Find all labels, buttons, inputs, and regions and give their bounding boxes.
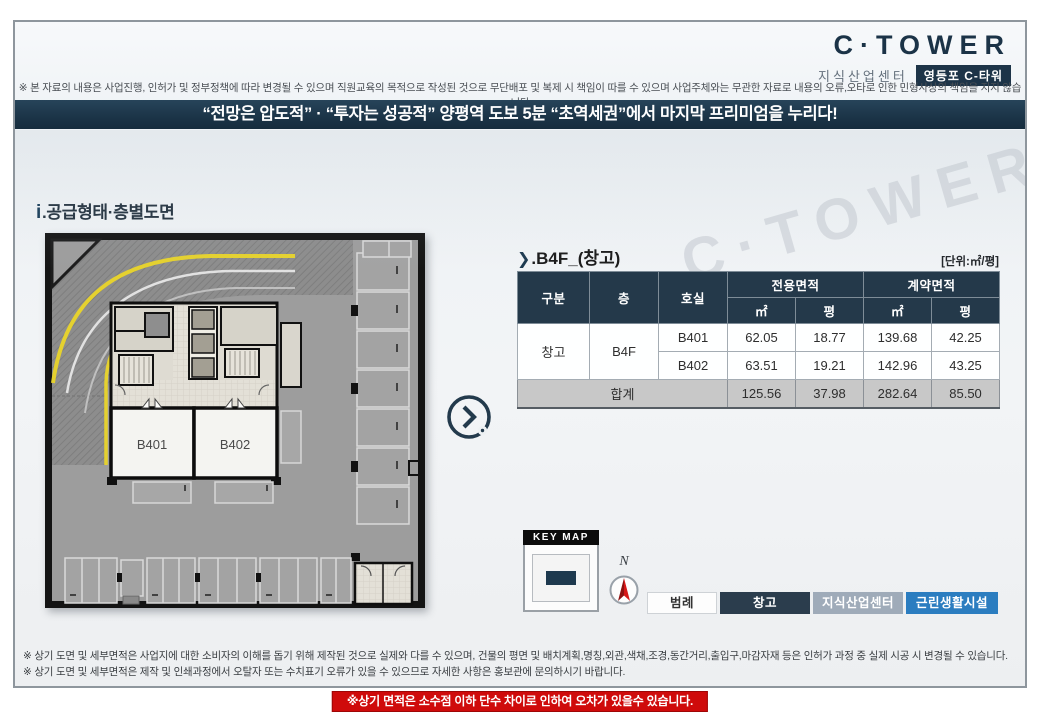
keymap: KEY MAP bbox=[523, 530, 599, 612]
wall-nook bbox=[409, 461, 419, 475]
col-floor: 층 bbox=[590, 272, 659, 324]
compass-north-label: N bbox=[618, 554, 629, 569]
cell-room: B401 bbox=[659, 324, 728, 352]
area-warning-bar: ※상기 면적은 소수점 이하 단수 차이로 인하여 오차가 있을수 있습니다. bbox=[332, 691, 708, 712]
col-exclusive-m2: ㎡ bbox=[728, 298, 796, 324]
footer-note-2: ※ 상기 도면 및 세부면적은 제작 및 인쇄과정에서 오탈자 또는 수치표기 … bbox=[23, 664, 625, 679]
cell-room: B402 bbox=[659, 352, 728, 380]
elevator-lobby bbox=[173, 305, 189, 380]
legend-item-knowledge-industry: 지식산업센터 bbox=[813, 592, 903, 614]
legend-item-neighborhood-facility: 근린생활시설 bbox=[906, 592, 998, 614]
core-room-right bbox=[221, 307, 277, 345]
col-room: 호실 bbox=[659, 272, 728, 324]
stall-beside-core bbox=[281, 411, 301, 463]
cell-contract-py: 43.25 bbox=[932, 352, 1000, 380]
compass-icon: N bbox=[601, 550, 647, 614]
section-title: i.공급형태·층별도면 bbox=[36, 198, 175, 224]
cell-exclusive-py: 19.21 bbox=[796, 352, 864, 380]
table-total-row: 합계 125.56 37.98 282.64 85.50 bbox=[518, 380, 1000, 408]
headline-banner: “전망은 압도적” · “투자는 성공적” 양평역 도보 5분 “초역세권”에서… bbox=[15, 100, 1025, 129]
cell-exclusive-py: 18.77 bbox=[796, 324, 864, 352]
footer-note-1: ※ 상기 도면 및 세부면적은 사업지에 대한 소비자의 이해를 돕기 위해 제… bbox=[23, 648, 1008, 663]
keymap-box bbox=[523, 545, 599, 612]
section-title-text: .공급형태·층별도면 bbox=[42, 203, 175, 222]
elevator-shaft bbox=[192, 310, 214, 329]
table-row: 창고 B4F B401 62.05 18.77 139.68 42.25 bbox=[518, 324, 1000, 352]
cell-total-exclusive-m2: 125.56 bbox=[728, 380, 796, 408]
cell-contract-py: 42.25 bbox=[932, 324, 1000, 352]
area-table: 구분 층 호실 전용면적 계약면적 ㎡ 평 ㎡ 평 창고 B4F B401 62… bbox=[517, 271, 1000, 409]
cell-category: 창고 bbox=[518, 324, 590, 380]
unit-b402-label: B402 bbox=[220, 437, 250, 452]
legend-title: 범례 bbox=[647, 592, 717, 614]
cell-contract-m2: 139.68 bbox=[864, 324, 932, 352]
keymap-marker bbox=[546, 571, 576, 585]
parking-bottom bbox=[65, 558, 351, 603]
page-frame: C·TOWER C·TOWER 지식산업센터 영등포 C-타워 ※ 본 자료의 … bbox=[13, 20, 1027, 688]
parking-right bbox=[357, 241, 411, 524]
unit-note: [단위:㎡/평] bbox=[941, 253, 999, 269]
legend-item-warehouse: 창고 bbox=[720, 592, 810, 614]
cell-total-exclusive-py: 37.98 bbox=[796, 380, 864, 408]
core-annex bbox=[281, 323, 301, 387]
keymap-site-outline bbox=[532, 554, 590, 602]
col-exclusive-group: 전용면적 bbox=[728, 272, 864, 298]
next-arrow-button[interactable] bbox=[443, 391, 495, 443]
table-caption-text: .B4F_(창고) bbox=[531, 249, 620, 268]
legend: 범례 창고 지식산업센터 근린생활시설 bbox=[647, 592, 998, 614]
cell-total-label: 합계 bbox=[518, 380, 728, 408]
elevator-shaft bbox=[192, 358, 214, 377]
cell-floor: B4F bbox=[590, 324, 659, 380]
cell-contract-m2: 142.96 bbox=[864, 352, 932, 380]
cell-exclusive-m2: 62.05 bbox=[728, 324, 796, 352]
logo-block: C·TOWER 지식산업센터 영등포 C-타워 bbox=[818, 30, 1011, 86]
cell-total-contract-m2: 282.64 bbox=[864, 380, 932, 408]
keymap-title: KEY MAP bbox=[523, 530, 599, 545]
col-category: 구분 bbox=[518, 272, 590, 324]
brand-logo: C·TOWER bbox=[818, 30, 1011, 61]
table-caption: ❯.B4F_(창고) bbox=[517, 244, 620, 269]
chevron-right-icon bbox=[464, 407, 474, 427]
shaft-dark bbox=[145, 313, 169, 337]
table-caption-row: ❯.B4F_(창고) [단위:㎡/평] bbox=[517, 244, 999, 269]
cell-total-contract-py: 85.50 bbox=[932, 380, 1000, 408]
col-exclusive-py: 평 bbox=[796, 298, 864, 324]
unit-b401-label: B401 bbox=[137, 437, 167, 452]
col-contract-m2: ㎡ bbox=[864, 298, 932, 324]
elevator-shaft bbox=[192, 334, 214, 353]
cell-exclusive-m2: 63.51 bbox=[728, 352, 796, 380]
col-contract-group: 계약면적 bbox=[864, 272, 1000, 298]
chevron-icon: ❯ bbox=[517, 251, 530, 268]
col-contract-py: 평 bbox=[932, 298, 1000, 324]
info-icon: i bbox=[36, 202, 41, 223]
floorplan-drawing: B401 B402 bbox=[45, 233, 425, 608]
